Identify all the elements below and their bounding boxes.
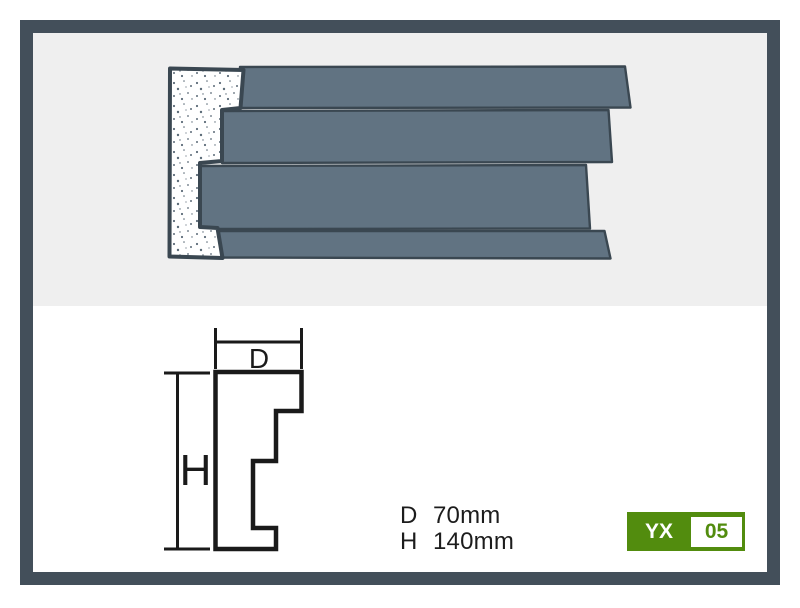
render-bar-third	[200, 165, 590, 229]
spec-depth-label: D	[400, 503, 433, 529]
spec-height-label: H	[400, 529, 433, 555]
specs-list: D 70mm H 140mm	[400, 503, 514, 555]
product-render	[33, 33, 767, 306]
dimension-drawing-section: D H D 70mm H 140mm YX 05	[33, 306, 767, 572]
badge-series-label: YX	[627, 512, 691, 551]
profile-outline	[216, 372, 302, 549]
panel-frame: D H D 70mm H 140mm YX 05	[20, 20, 780, 585]
product-render-section	[33, 33, 767, 306]
d-dimension-label: D	[249, 343, 269, 374]
spec-row-depth: D 70mm	[400, 503, 514, 529]
render-bar-bottom	[218, 231, 611, 259]
render-bar-second	[222, 110, 612, 163]
product-code-badge: YX 05	[627, 512, 745, 551]
h-dimension-label: H	[180, 446, 212, 495]
render-bars	[200, 67, 631, 259]
spec-height-value: 140mm	[433, 529, 514, 555]
render-bar-top	[240, 67, 631, 109]
spec-depth-value: 70mm	[433, 503, 500, 529]
badge-number: 05	[691, 517, 742, 547]
spec-row-height: H 140mm	[400, 529, 514, 555]
